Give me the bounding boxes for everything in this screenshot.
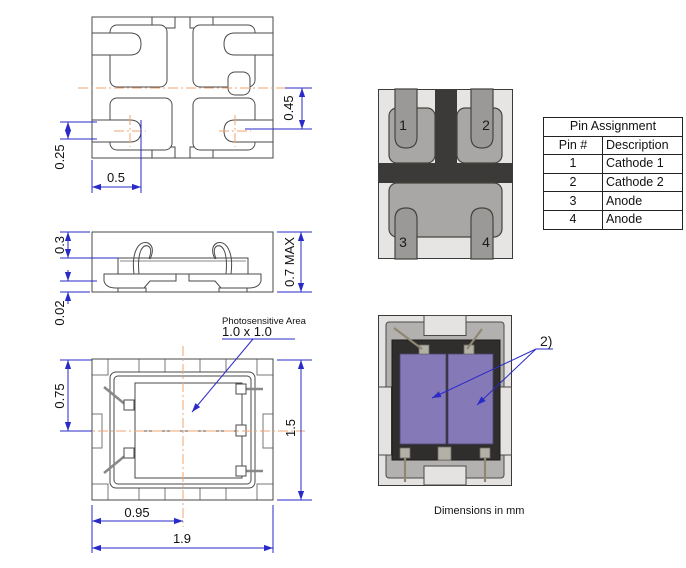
engineering-drawings: 0.45 0.25 0.5 0 [0,0,350,568]
render-bottom-view: 1 2 3 4 [374,85,517,264]
pin-3-number: 3 [399,234,407,250]
pin-number-cell: 4 [544,210,603,229]
dim-002-label: 0.02 [52,300,67,325]
lead-upper-left [92,33,141,55]
pin-number-cell: 2 [544,173,603,192]
dim-045-label: 0.45 [281,95,296,120]
leadframe-right [189,274,261,288]
lead-lower-right [224,120,273,142]
pin-4-number: 4 [482,234,490,250]
foot-right [219,288,247,292]
dim-095-label: 0.95 [124,505,149,520]
die-slab [118,258,248,274]
dim-025-label: 0.25 [52,144,67,169]
dim-05-label: 0.5 [107,170,125,185]
note-2-label: 2) [540,333,552,349]
dim-075-label: 0.75 [52,383,67,408]
table-row: 2 Cathode 2 [544,173,683,192]
table-row: 4 Anode [544,210,683,229]
pin-1-number: 1 [399,117,407,133]
table-row: 3 Anode [544,192,683,211]
foot-left [118,288,146,292]
pin-2-number: 2 [482,117,490,133]
bond-pad [124,448,134,458]
dimensions-note: Dimensions in mm [434,505,524,517]
photosensitive-area-2 [448,354,493,444]
table-title: Pin Assignment [544,118,683,137]
photosensitive-size-label: 1.0 x 1.0 [222,324,272,339]
render-top-view: 2) [374,300,686,525]
index-tab [228,72,250,95]
dim-03-label: 0.3 [52,236,67,254]
pin-desc-cell: Anode [603,210,683,229]
lead-upper-right [224,33,273,55]
bond-pad [124,400,134,410]
pin-assignment-table: Pin Assignment Pin # Description 1 Catho… [543,117,683,230]
col-header-pin: Pin # [544,136,603,155]
bond-pad [236,384,246,394]
pin-desc-cell: Cathode 1 [603,155,683,174]
side-view-outline [92,232,273,292]
dim-15-label: 1.5 [283,419,298,437]
dim-07max-label: 0.7 MAX [282,237,297,287]
bond-pad [236,466,246,476]
photosensitive-area-1 [400,354,446,444]
pin-number-cell: 3 [544,192,603,211]
leadframe-left [104,274,176,288]
dim-19-label: 1.9 [173,531,191,546]
pin-number-cell: 1 [544,155,603,174]
pin-desc-cell: Cathode 2 [603,173,683,192]
table-row: 1 Cathode 1 [544,155,683,174]
datasheet-page: 0.45 0.25 0.5 0 [0,0,686,568]
col-header-description: Description [603,136,683,155]
pin-desc-cell: Anode [603,192,683,211]
